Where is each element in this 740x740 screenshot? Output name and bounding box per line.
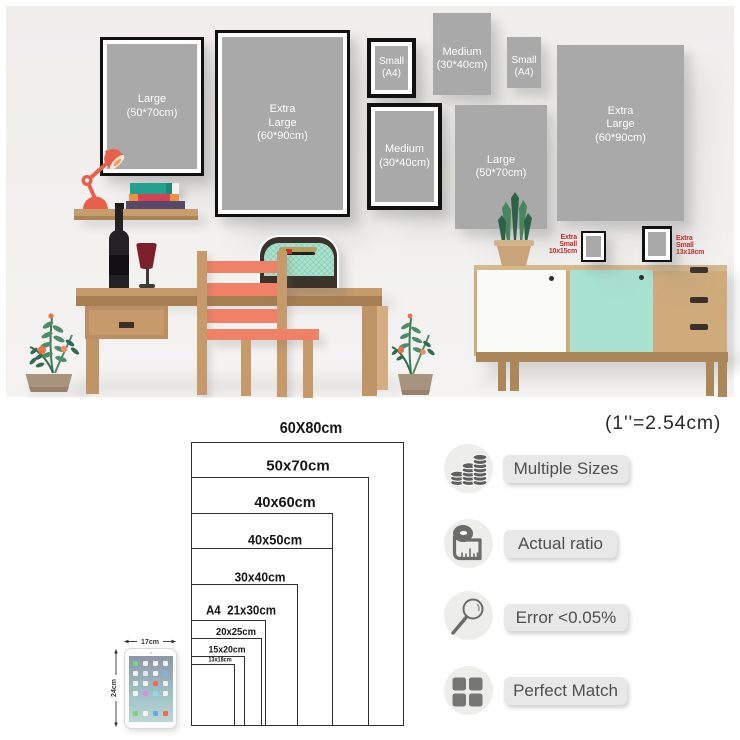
svg-text:17cm: 17cm — [141, 639, 159, 646]
svg-text:24cm: 24cm — [111, 679, 118, 697]
